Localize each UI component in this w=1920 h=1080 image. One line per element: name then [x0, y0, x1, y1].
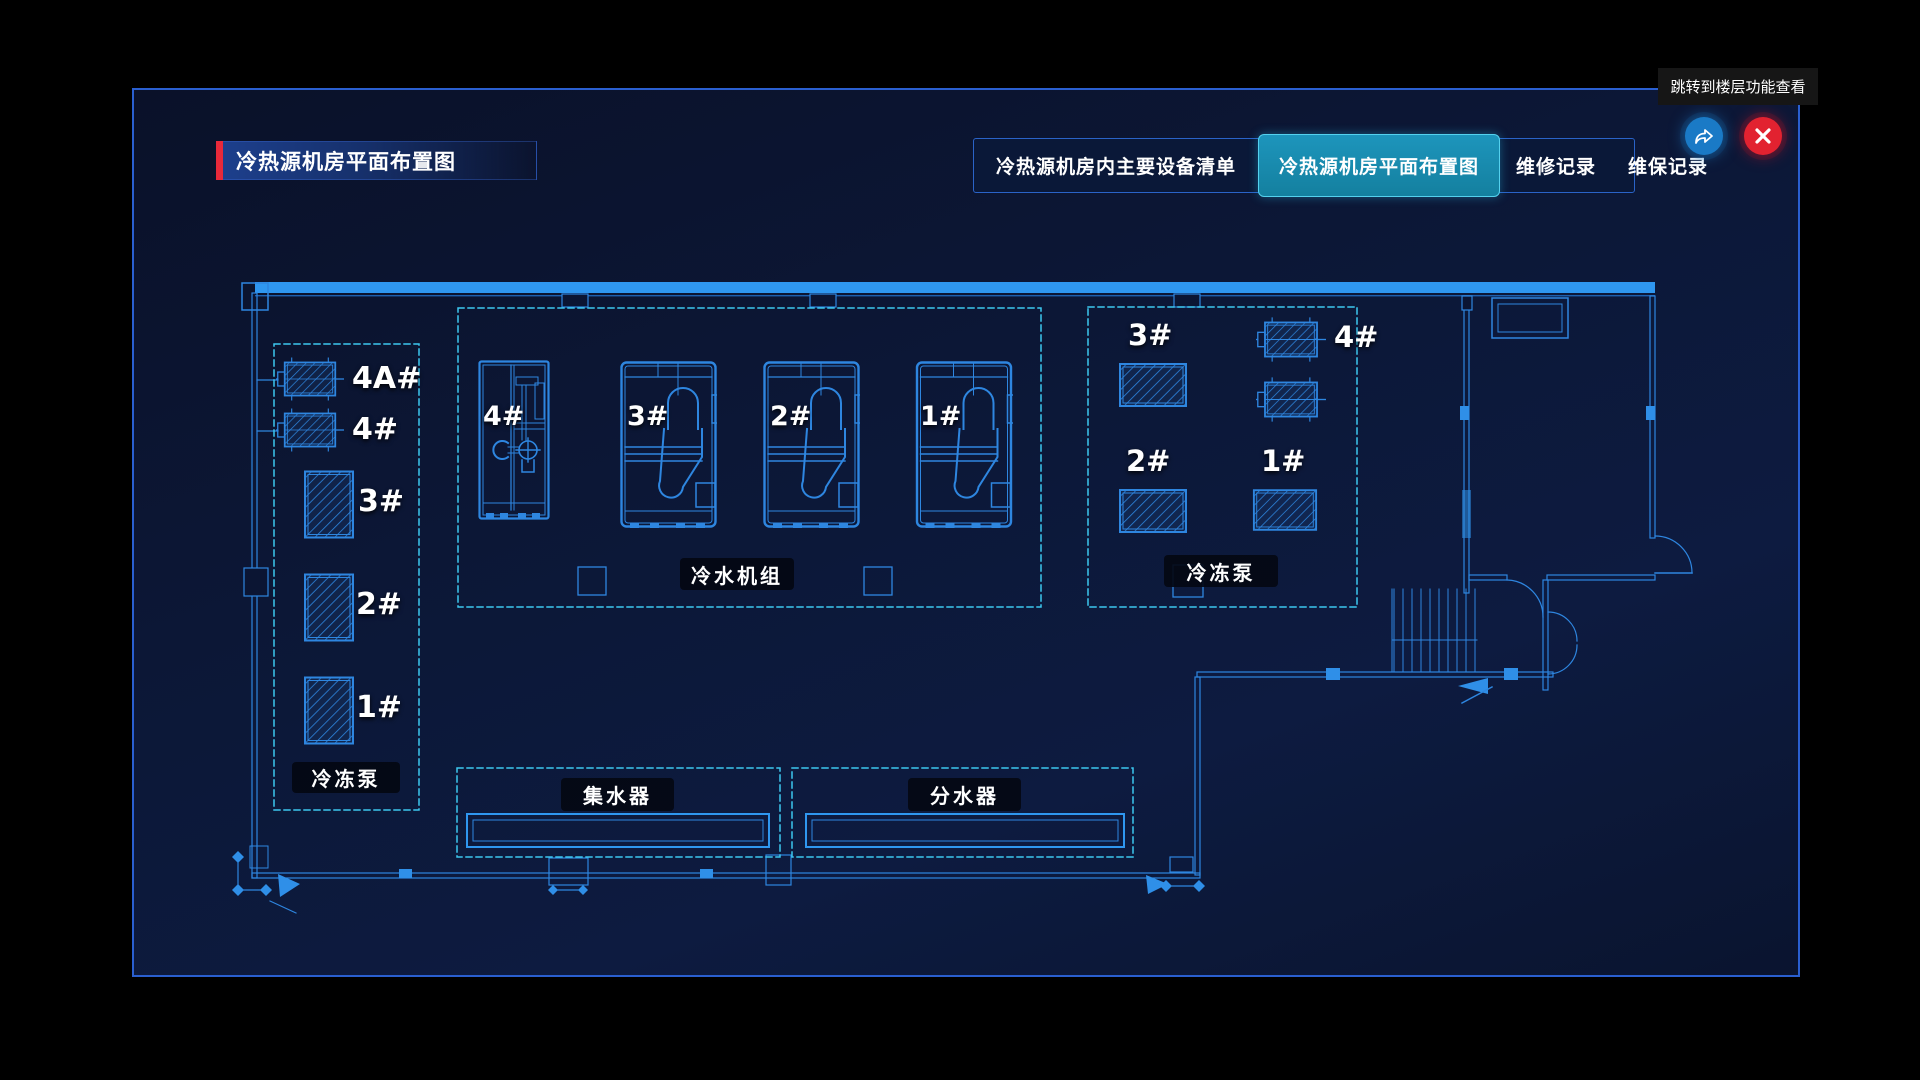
unit-label-right-1: 1# — [1261, 446, 1305, 478]
chiller-1-drawing — [917, 363, 1017, 529]
distributor-label: 分水器 — [908, 778, 1021, 811]
double-door-arc-top — [1548, 612, 1577, 641]
collector-vessel — [467, 814, 769, 847]
pump-3-left-drawing — [305, 472, 353, 538]
chiller-2-drawing — [765, 363, 865, 529]
unit-label-left-4a: 4A# — [352, 362, 421, 395]
chiller-group-label: 冷水机组 — [680, 558, 794, 590]
unit-label-chiller-2: 2# — [770, 402, 811, 432]
unit-label-chiller-1: 1# — [920, 402, 961, 432]
collector-label: 集水器 — [561, 778, 674, 811]
close-icon — [1744, 117, 1782, 155]
pipe-riser-box — [766, 855, 791, 885]
pump-1-right-drawing — [1254, 490, 1316, 530]
unit-label-chiller-3: 3# — [627, 402, 668, 432]
left-pump-group-label: 冷冻泵 — [292, 762, 400, 793]
jump-to-floor-button[interactable] — [1685, 117, 1723, 155]
unit-label-left-3: 3# — [358, 485, 404, 518]
chiller-3-drawing — [622, 363, 722, 529]
pump-4-right-top-drawing — [1256, 318, 1326, 361]
stairs — [1392, 589, 1477, 671]
pipe-fittings-corner — [232, 846, 300, 913]
exterior-door-arc — [1655, 536, 1692, 573]
tab-bar: 冷热源机房内主要设备清单 冷热源机房平面布置图 维修记录 维保记录 — [973, 138, 1635, 193]
unit-label-right-2: 2# — [1126, 446, 1170, 478]
page-background: 冷热源机房平面布置图 冷热源机房内主要设备清单 冷热源机房平面布置图 维修记录 … — [0, 0, 1920, 1080]
pump-2-left-drawing — [305, 575, 353, 641]
pump-4-right-bottom-drawing — [1256, 378, 1326, 421]
pump-4-left-drawing — [276, 409, 344, 451]
page-title: 冷热源机房平面布置图 — [216, 141, 537, 180]
tab-equipment-list[interactable]: 冷热源机房内主要设备清单 — [974, 139, 1258, 192]
unit-label-left-1: 1# — [356, 691, 402, 724]
distributor-vessel — [806, 814, 1124, 847]
door-arc-inner — [1507, 580, 1543, 617]
pump-1-left-drawing — [305, 678, 353, 744]
unit-label-chiller-4: 4# — [483, 402, 524, 432]
pump-3-right-drawing — [1120, 364, 1186, 406]
chiller-4-drawing — [480, 362, 549, 520]
pipe-fittings-collector — [548, 858, 588, 895]
pump-2-right-drawing — [1120, 490, 1186, 532]
share-forward-arrow-icon — [1692, 124, 1716, 148]
bottom-wall — [252, 873, 1200, 878]
title-accent-bar — [216, 141, 223, 180]
top-wall — [255, 282, 1655, 293]
page-title-text: 冷热源机房平面布置图 — [236, 146, 456, 176]
double-door-arc-bottom — [1548, 645, 1577, 674]
tab-floorplan[interactable]: 冷热源机房平面布置图 — [1258, 134, 1500, 197]
unit-label-right-4: 4# — [1334, 322, 1378, 354]
unit-label-left-2: 2# — [356, 588, 402, 621]
unit-label-left-4: 4# — [352, 413, 398, 446]
tab-repair-records[interactable]: 维修记录 — [1500, 139, 1612, 192]
unit-label-right-3: 3# — [1128, 320, 1172, 352]
corridor-left-wall — [1464, 296, 1469, 593]
jump-tooltip: 跳转到楼层功能查看 — [1658, 68, 1818, 105]
right-pump-group-label: 冷冻泵 — [1164, 555, 1278, 587]
pump-4a-drawing — [276, 358, 344, 400]
close-button[interactable] — [1744, 117, 1782, 155]
